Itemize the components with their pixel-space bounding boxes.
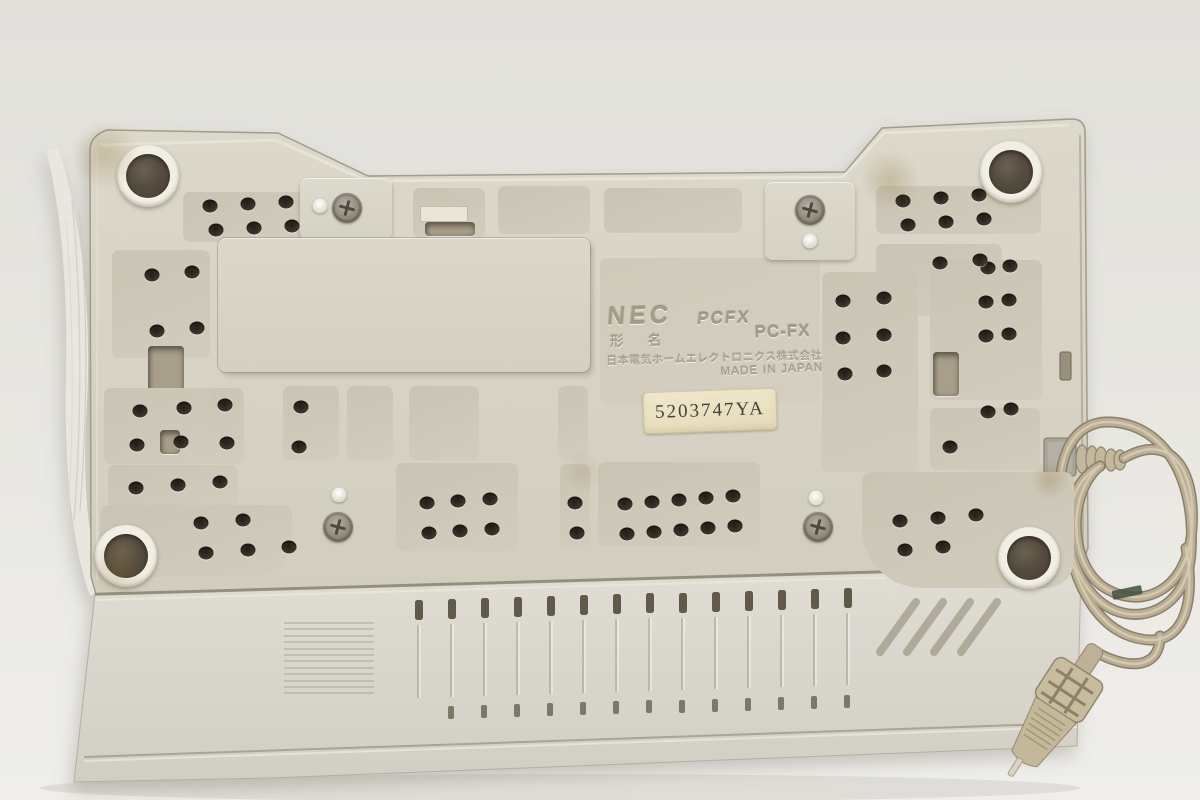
vent-hole (979, 296, 994, 309)
embossed-model-label: 形 名 (609, 330, 671, 352)
recess (604, 188, 742, 233)
vent-hole (618, 498, 633, 511)
vent-hole (647, 526, 662, 539)
vent-hole (150, 325, 165, 338)
embossed-logo-model: PCFX (696, 308, 752, 329)
rubber-foot (980, 141, 1042, 203)
plastic-clip (332, 488, 347, 503)
vent-hole (726, 490, 741, 503)
vent-hole (247, 222, 262, 235)
vent-hole (981, 406, 996, 419)
vent-hole (972, 189, 987, 202)
vent-hole (936, 541, 951, 554)
vent-hole (674, 524, 689, 537)
vent-hole (451, 495, 466, 508)
vent-hole (939, 216, 954, 229)
plastic-clip (803, 234, 818, 249)
vent-hole (133, 405, 148, 418)
vent-hole (420, 497, 435, 510)
recess (409, 386, 479, 460)
vent-hole (453, 525, 468, 538)
latch-slot (425, 222, 475, 236)
vent-hole (1002, 294, 1017, 307)
screw (332, 193, 362, 223)
screw (323, 512, 353, 542)
vent-hole (292, 441, 307, 454)
vent-hole (194, 517, 209, 530)
expansion-bay-cover (218, 238, 590, 372)
vent-hole (485, 523, 500, 536)
recess (498, 186, 590, 234)
rubber-foot (117, 145, 179, 207)
serial-sticker: 5203747YA (642, 388, 777, 435)
vent-hole (174, 436, 189, 449)
vent-hole (213, 476, 228, 489)
small-blank-sticker (420, 206, 468, 222)
vent-hole (177, 402, 192, 415)
deep-notch (933, 352, 959, 396)
recess (347, 386, 393, 460)
vent-hole (199, 547, 214, 560)
recess (558, 386, 588, 460)
photo-nec-pcfx-underside: NEC PCFX 形 名 PC-FX 日本電気ホームエレクトロニクス株式会社 M… (0, 0, 1200, 800)
vent-hole (977, 213, 992, 226)
vent-hole (699, 492, 714, 505)
vent-hole (282, 541, 297, 554)
vent-hole (483, 493, 498, 506)
vent-hole (241, 198, 256, 211)
vent-hole (130, 439, 145, 452)
vent-hole (893, 515, 908, 528)
vent-hole (1002, 328, 1017, 341)
vent-hole (241, 544, 256, 557)
screw (795, 195, 825, 225)
vent-hole (209, 224, 224, 237)
vent-hole (1004, 403, 1019, 416)
vent-hole (979, 330, 994, 343)
vent-hole (570, 527, 585, 540)
vent-hole (933, 257, 948, 270)
vent-hole (422, 527, 437, 540)
console-underside-details: NEC PCFX 形 名 PC-FX 日本電気ホームエレクトロニクス株式会社 M… (0, 0, 1200, 800)
vent-hole (943, 441, 958, 454)
rubber-foot (998, 527, 1060, 589)
vent-hole (728, 520, 743, 533)
vent-hole (1003, 260, 1018, 273)
vent-hole (934, 192, 949, 205)
screw (803, 512, 833, 542)
vent-hole (620, 528, 635, 541)
vent-hole (973, 254, 988, 267)
vent-hole (898, 544, 913, 557)
vent-hole (969, 509, 984, 522)
vent-hole (203, 200, 218, 213)
vent-hole (672, 494, 687, 507)
vent-hole (185, 266, 200, 279)
vent-hole (171, 479, 186, 492)
vent-hole (279, 196, 294, 209)
vent-hole (129, 482, 144, 495)
vent-hole (701, 522, 716, 535)
plastic-clip (809, 491, 824, 506)
vent-hole (145, 269, 160, 282)
vent-hole (294, 401, 309, 414)
plastic-clip (313, 199, 328, 214)
serial-number: 5203747YA (655, 398, 766, 424)
vent-hole (896, 195, 911, 208)
vent-hole (220, 437, 235, 450)
vent-hole (190, 322, 205, 335)
vent-hole (285, 220, 300, 233)
vent-hole (645, 496, 660, 509)
vent-hole (568, 497, 583, 510)
vent-hole (901, 219, 916, 232)
deep-notch (148, 346, 184, 392)
vent-hole (218, 399, 233, 412)
embossed-model-number: PC-FX (754, 321, 811, 342)
embossed-brand: NEC (606, 301, 673, 332)
vent-hole (236, 514, 251, 527)
rubber-foot (95, 525, 157, 587)
vent-hole (931, 512, 946, 525)
